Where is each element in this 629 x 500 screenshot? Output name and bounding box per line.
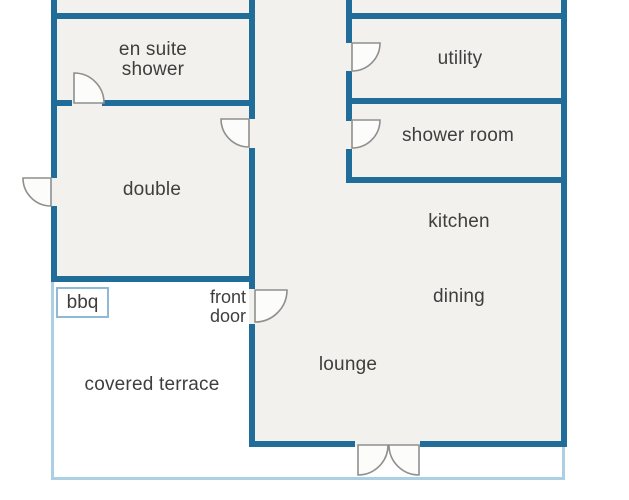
terrace-outline-bottom [51, 477, 565, 480]
wall-right-block-west-upper [346, 0, 352, 43]
room-label-kitchen: kitchen [428, 212, 490, 232]
room-label-shower-room: shower room [402, 126, 514, 146]
bbq-label: bbq [67, 292, 99, 314]
floorplan-canvas: en suite shower double utility shower ro… [0, 0, 629, 500]
front-door-label-line2: door [210, 307, 246, 326]
room-label-ensuite-shower: en suite shower [119, 40, 187, 80]
ensuite-label-line2: shower [119, 60, 187, 80]
wall-south-right [420, 441, 567, 447]
terrace-outline-right [562, 447, 565, 480]
front-door-label: front door [210, 288, 246, 326]
wall-hallway-west-upper [249, 0, 255, 119]
room-label-dining: dining [433, 287, 485, 307]
wall-double-bottom [51, 276, 255, 282]
wall-west-upper [51, 0, 57, 178]
wall-ensuite-bottom-left [51, 100, 72, 106]
wall-top-left-block [51, 13, 255, 19]
wall-shower-room-bottom [346, 177, 567, 183]
double-exterior-door-swing [23, 178, 51, 206]
wall-south-left [249, 441, 355, 447]
hallway-fill [255, 0, 347, 447]
wall-east [561, 0, 567, 447]
wall-lounge-west [249, 324, 255, 447]
front-door-label-line1: front [210, 288, 246, 307]
wall-top-right-block [346, 13, 567, 19]
wall-hallway-west-middle [249, 148, 255, 289]
terrace-outline-left [51, 282, 54, 480]
wall-right-block-west-middle [346, 71, 352, 121]
wall-west-lower [51, 206, 57, 282]
wall-utility-bottom [346, 98, 567, 104]
room-label-lounge: lounge [319, 355, 377, 375]
room-label-covered-terrace: covered terrace [84, 375, 219, 395]
room-label-double: double [123, 180, 181, 200]
ensuite-label-line1: en suite [119, 40, 187, 60]
wall-ensuite-bottom-right [102, 100, 255, 106]
bbq-box: bbq [56, 287, 109, 318]
patio-double-door-left-swing [358, 445, 388, 475]
room-label-utility: utility [438, 49, 483, 69]
patio-double-door-right-swing [389, 445, 419, 475]
